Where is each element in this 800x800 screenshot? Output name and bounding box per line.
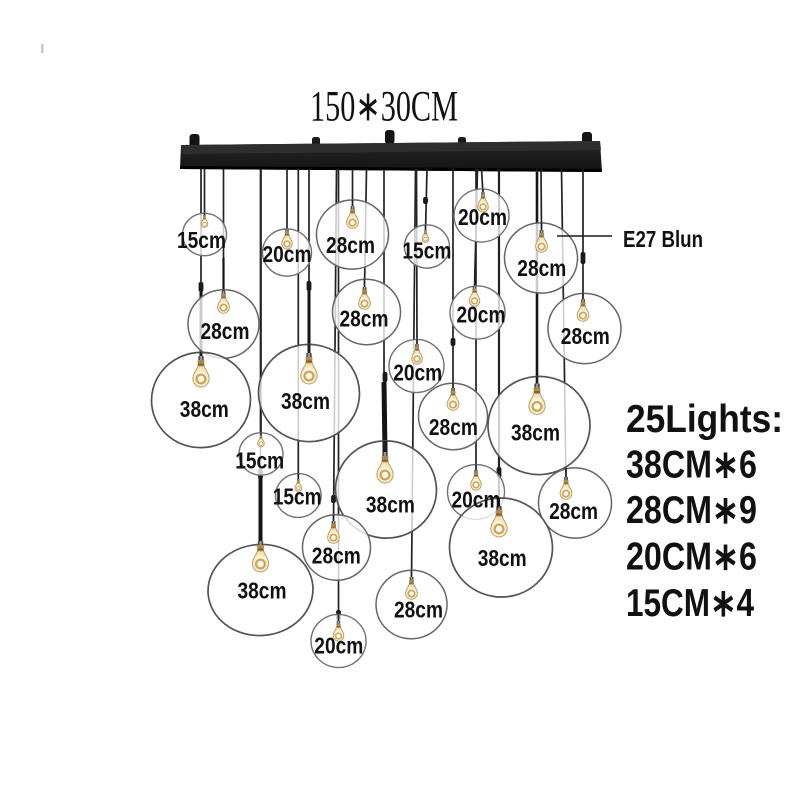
svg-text:28cm: 28cm bbox=[201, 318, 250, 344]
svg-text:38cm: 38cm bbox=[238, 578, 287, 604]
svg-text:38CM∗6: 38CM∗6 bbox=[626, 444, 757, 487]
svg-text:28CM∗9: 28CM∗9 bbox=[626, 489, 757, 532]
svg-text:28cm: 28cm bbox=[517, 255, 566, 281]
svg-text:15cm: 15cm bbox=[235, 448, 284, 474]
svg-text:20cm: 20cm bbox=[452, 486, 501, 512]
svg-text:20cm: 20cm bbox=[314, 632, 363, 658]
svg-text:38cm: 38cm bbox=[478, 545, 527, 571]
svg-text:150∗30CM: 150∗30CM bbox=[310, 84, 458, 131]
svg-text:28cm: 28cm bbox=[429, 414, 478, 440]
svg-text:38cm: 38cm bbox=[281, 388, 330, 414]
svg-text:28cm: 28cm bbox=[340, 306, 389, 332]
svg-text:E27 Blun: E27 Blun bbox=[623, 226, 703, 252]
svg-text:20cm: 20cm bbox=[458, 204, 507, 230]
svg-text:20cm: 20cm bbox=[263, 241, 312, 267]
svg-text:15cm: 15cm bbox=[177, 227, 226, 253]
svg-text:28cm: 28cm bbox=[394, 597, 443, 623]
svg-text:20cm: 20cm bbox=[393, 360, 442, 386]
svg-text:20cm: 20cm bbox=[457, 302, 506, 328]
svg-text:28cm: 28cm bbox=[561, 323, 610, 349]
svg-text:28cm: 28cm bbox=[312, 543, 361, 569]
svg-text:28cm: 28cm bbox=[326, 232, 375, 258]
svg-text:38cm: 38cm bbox=[511, 419, 560, 445]
svg-text:15cm: 15cm bbox=[273, 483, 322, 509]
svg-text:38cm: 38cm bbox=[366, 492, 415, 518]
svg-text:15CM∗4: 15CM∗4 bbox=[626, 582, 754, 625]
svg-text:20CM∗6: 20CM∗6 bbox=[626, 536, 757, 579]
svg-text:28cm: 28cm bbox=[549, 498, 598, 524]
svg-text:15cm: 15cm bbox=[402, 237, 451, 263]
svg-text:25Lights:: 25Lights: bbox=[626, 398, 783, 441]
svg-text:38cm: 38cm bbox=[180, 396, 229, 422]
